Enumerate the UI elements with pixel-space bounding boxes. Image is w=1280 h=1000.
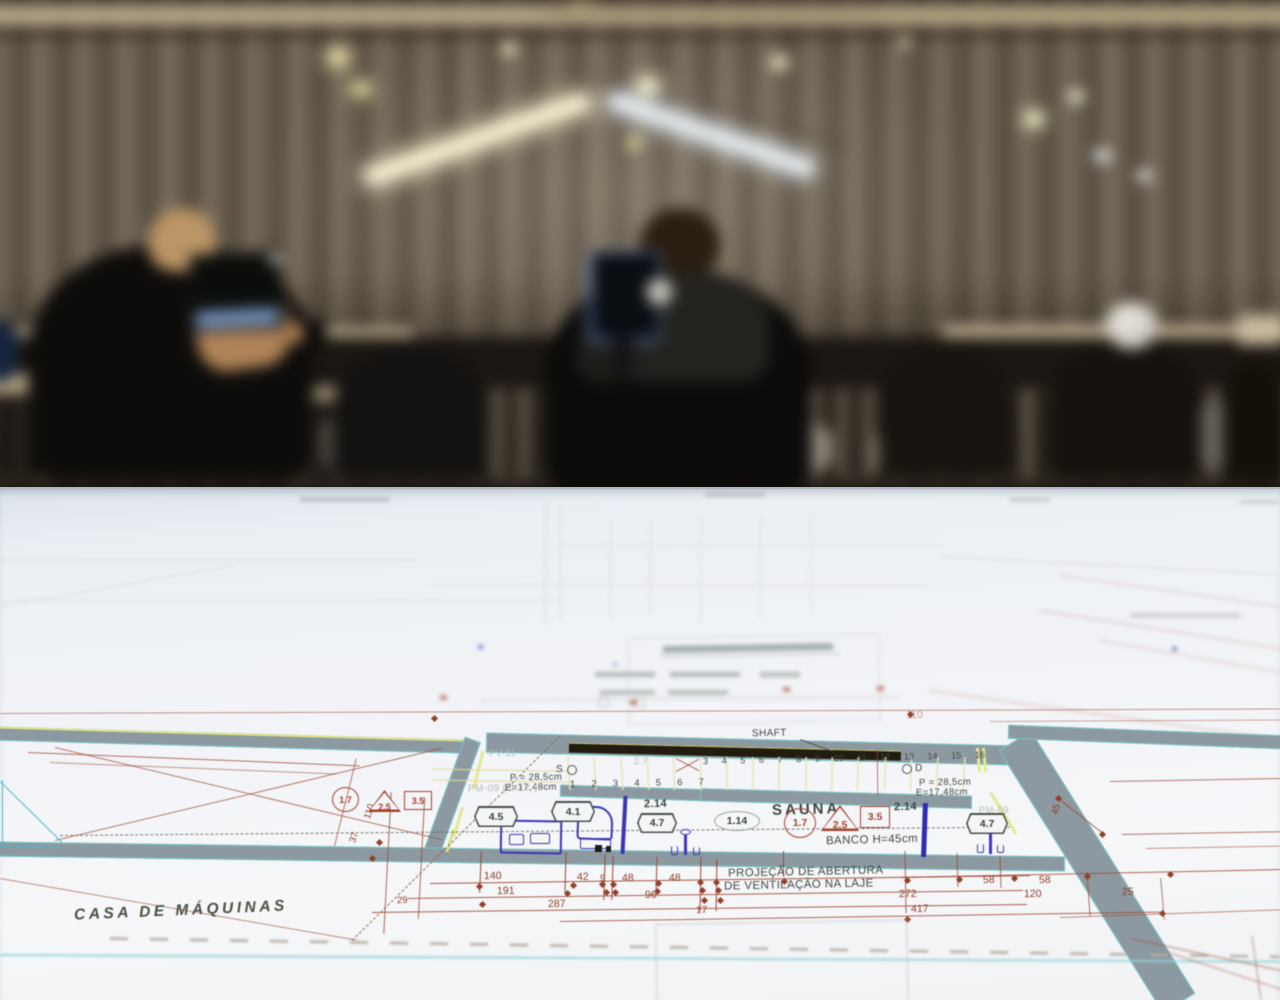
floor-plan: SHAFTSAUNABANCO H=45cmPROJEÇÃO DE ABERTU… (0, 0, 1280, 1000)
plan-bottom-region (0, 0, 1280, 1000)
photo-scene: SHAFTSAUNABANCO H=45cmPROJEÇÃO DE ABERTU… (0, 0, 1280, 1000)
